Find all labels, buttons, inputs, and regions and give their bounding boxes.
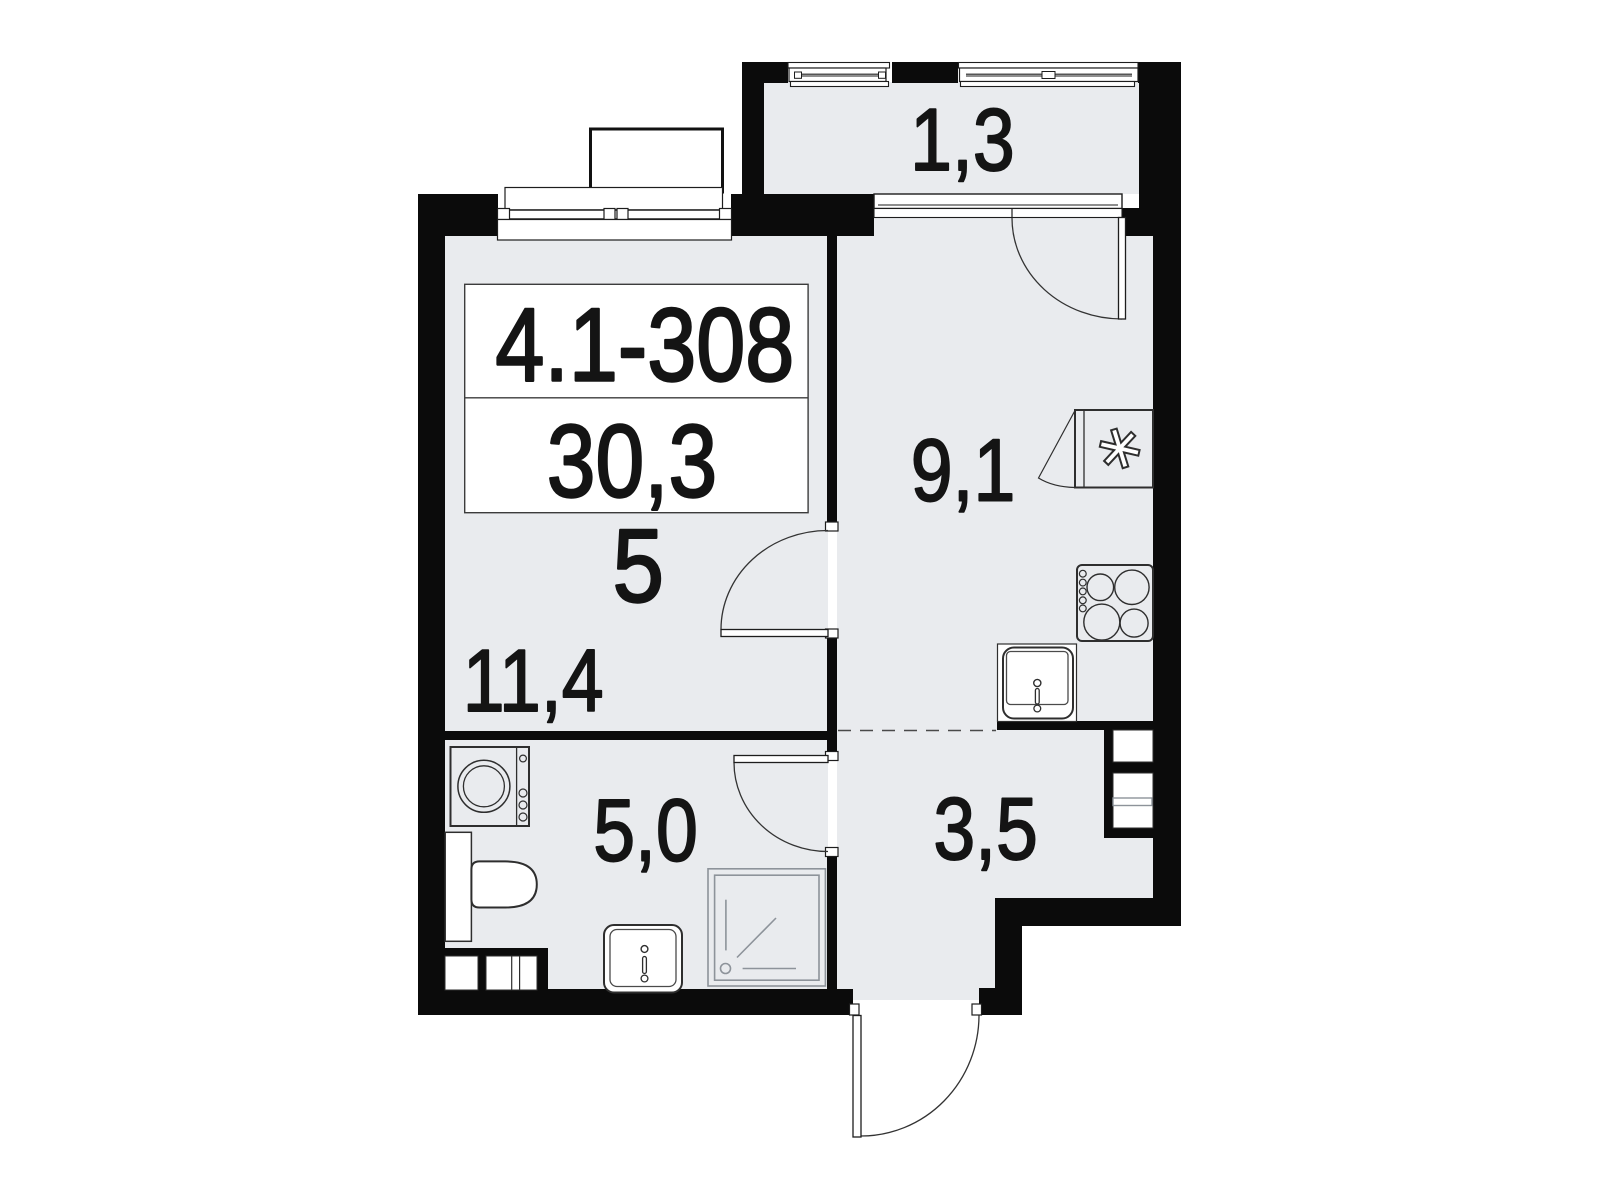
svg-text:5: 5 — [613, 508, 664, 624]
svg-text:4.1-308: 4.1-308 — [495, 288, 794, 403]
svg-text:1,3: 1,3 — [910, 92, 1015, 190]
svg-text:9,1: 9,1 — [911, 422, 1016, 520]
svg-text:11,4: 11,4 — [463, 632, 604, 730]
svg-text:5,0: 5,0 — [593, 782, 698, 880]
svg-text:3,5: 3,5 — [933, 780, 1038, 878]
svg-text:30,3: 30,3 — [547, 404, 717, 519]
